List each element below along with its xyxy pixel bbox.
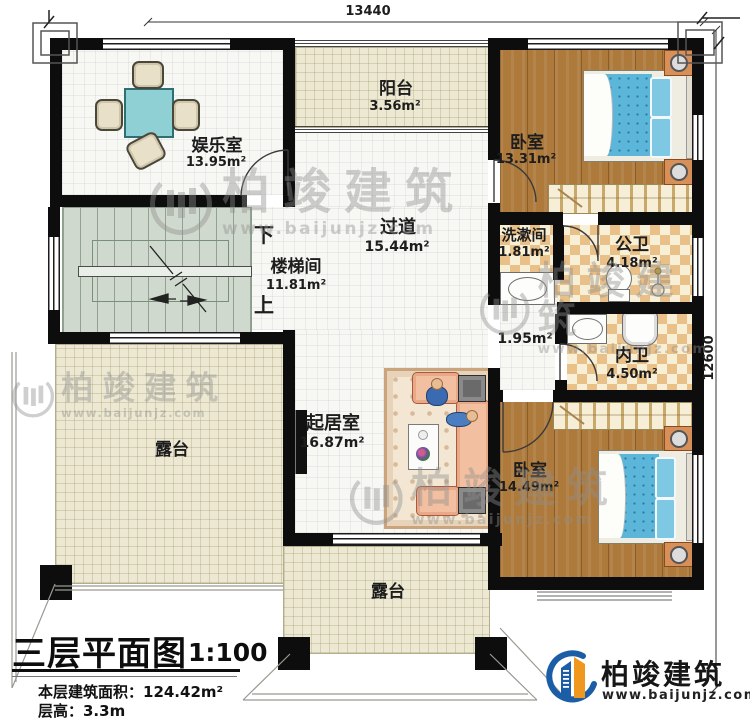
wall xyxy=(557,302,704,314)
nightstand xyxy=(664,50,694,76)
wall xyxy=(488,212,563,225)
bathtub xyxy=(622,311,658,346)
wall xyxy=(287,195,295,207)
room-area-entertainment: 13.95m² xyxy=(186,156,246,170)
window xyxy=(103,38,230,50)
wall xyxy=(283,38,295,207)
wall xyxy=(555,380,567,390)
wall xyxy=(48,332,110,344)
chair-top xyxy=(132,61,164,89)
room-area-living: 16.87m² xyxy=(299,436,364,451)
floor-area-text: 本层建筑面积：124.42m² xyxy=(38,681,223,702)
wall xyxy=(488,38,500,160)
window xyxy=(528,38,668,50)
bed-sheet xyxy=(584,74,613,156)
nightstand xyxy=(664,542,694,567)
brand-url: www.baijunjz.com xyxy=(602,688,750,703)
wall xyxy=(488,225,500,305)
person-sitting xyxy=(424,378,448,406)
room-label-entertainment: 娱乐室 xyxy=(192,137,243,156)
column xyxy=(475,637,507,670)
room-label-bedroom-bottom: 卧室 xyxy=(513,462,547,481)
sofa-bottom xyxy=(416,486,460,516)
watermark-logo-icon xyxy=(12,375,54,417)
column xyxy=(40,565,72,600)
window xyxy=(48,237,60,310)
title-underline xyxy=(12,669,240,672)
chair-right xyxy=(172,99,200,131)
wall xyxy=(50,38,62,207)
room-area-stairwell: 11.81m² xyxy=(266,279,326,293)
wall xyxy=(553,390,704,402)
title-underline-thin xyxy=(12,676,237,677)
person-reclining xyxy=(446,408,476,428)
balcony-sliding-door xyxy=(295,126,488,133)
wardrobe-top-bedroom xyxy=(548,184,694,214)
toilet-tank xyxy=(608,289,630,302)
room-label-public-bath: 公卫 xyxy=(615,236,649,255)
brand-logo-icon xyxy=(543,648,597,706)
dimension-top: 13440 xyxy=(345,5,390,19)
room-label-washroom: 洗漱间 xyxy=(501,227,546,244)
chair-left xyxy=(95,99,123,131)
wall xyxy=(283,330,295,546)
nightstand xyxy=(664,159,694,185)
wall xyxy=(50,195,247,207)
room-area-private-bath: 4.50m² xyxy=(606,368,657,382)
pillow xyxy=(650,77,672,118)
window xyxy=(692,238,704,296)
wall xyxy=(553,225,564,280)
pillow xyxy=(650,117,672,158)
pillow xyxy=(655,457,676,499)
stair-up-label: 上 xyxy=(254,294,274,316)
nightstand xyxy=(664,426,694,451)
bed-sheet xyxy=(599,454,626,538)
room-label-terrace-bottom: 露台 xyxy=(371,583,405,602)
corridor-floor-upper xyxy=(295,133,488,207)
floor-plan-canvas: 13440 12600 娱乐室 13.95m² 阳台 3.56m² 卧室 13.… xyxy=(0,0,750,722)
room-label-private-bath: 内卫 xyxy=(615,347,649,366)
dimension-right: 12600 xyxy=(703,335,717,380)
person-head xyxy=(466,410,478,422)
wall xyxy=(598,212,704,225)
pillow xyxy=(655,498,676,540)
plan-title: 三层平面图 xyxy=(12,626,187,675)
room-label-living: 起居室 xyxy=(306,414,360,434)
end-table-bottom xyxy=(458,487,486,514)
brand-name: 柏竣建筑 xyxy=(601,653,725,693)
coffee-table xyxy=(408,424,439,470)
flower-decor xyxy=(416,447,430,461)
room-label-terrace-left: 露台 xyxy=(155,441,189,460)
stair-down-label: 下 xyxy=(254,224,274,246)
bed-bottom xyxy=(598,450,694,544)
floor-height-text: 层高：3.3m xyxy=(38,700,125,721)
stair-handrail xyxy=(78,266,252,277)
wall xyxy=(283,533,333,546)
room-area-corridor: 15.44m² xyxy=(364,240,429,255)
room-label-corridor: 过道 xyxy=(380,218,416,238)
lower-window-lines xyxy=(537,592,672,600)
room-area-public-bath: 4.18m² xyxy=(606,257,657,271)
window xyxy=(692,115,704,160)
washroom-sink xyxy=(508,277,547,301)
room-label-bedroom-top: 卧室 xyxy=(510,134,544,153)
balcony-railing xyxy=(295,40,488,47)
room-area-hallway: 1.95m² xyxy=(497,332,552,347)
column xyxy=(278,637,310,670)
room-area-balcony: 3.56m² xyxy=(369,100,420,114)
game-table xyxy=(124,88,174,138)
table-decor xyxy=(418,430,428,440)
room-area-bedroom-top: 13.31m² xyxy=(496,153,556,167)
wall xyxy=(488,368,500,390)
room-area-bedroom-bottom: 14.49m² xyxy=(499,481,559,495)
wall xyxy=(488,390,503,402)
room-label-stairwell: 楼梯间 xyxy=(271,258,322,277)
person-head xyxy=(431,378,443,390)
end-table-top xyxy=(458,375,486,402)
wall xyxy=(488,577,704,590)
bed-top xyxy=(583,70,694,162)
plan-scale: 1:100 xyxy=(188,638,268,667)
privatebath-sink xyxy=(572,318,603,340)
terrace-left-floor xyxy=(55,344,285,584)
window xyxy=(333,533,480,546)
room-area-washroom: 1.81m² xyxy=(498,246,549,260)
window xyxy=(692,455,704,543)
room-label-balcony: 阳台 xyxy=(379,80,413,99)
window xyxy=(110,332,240,344)
wall xyxy=(555,314,567,344)
